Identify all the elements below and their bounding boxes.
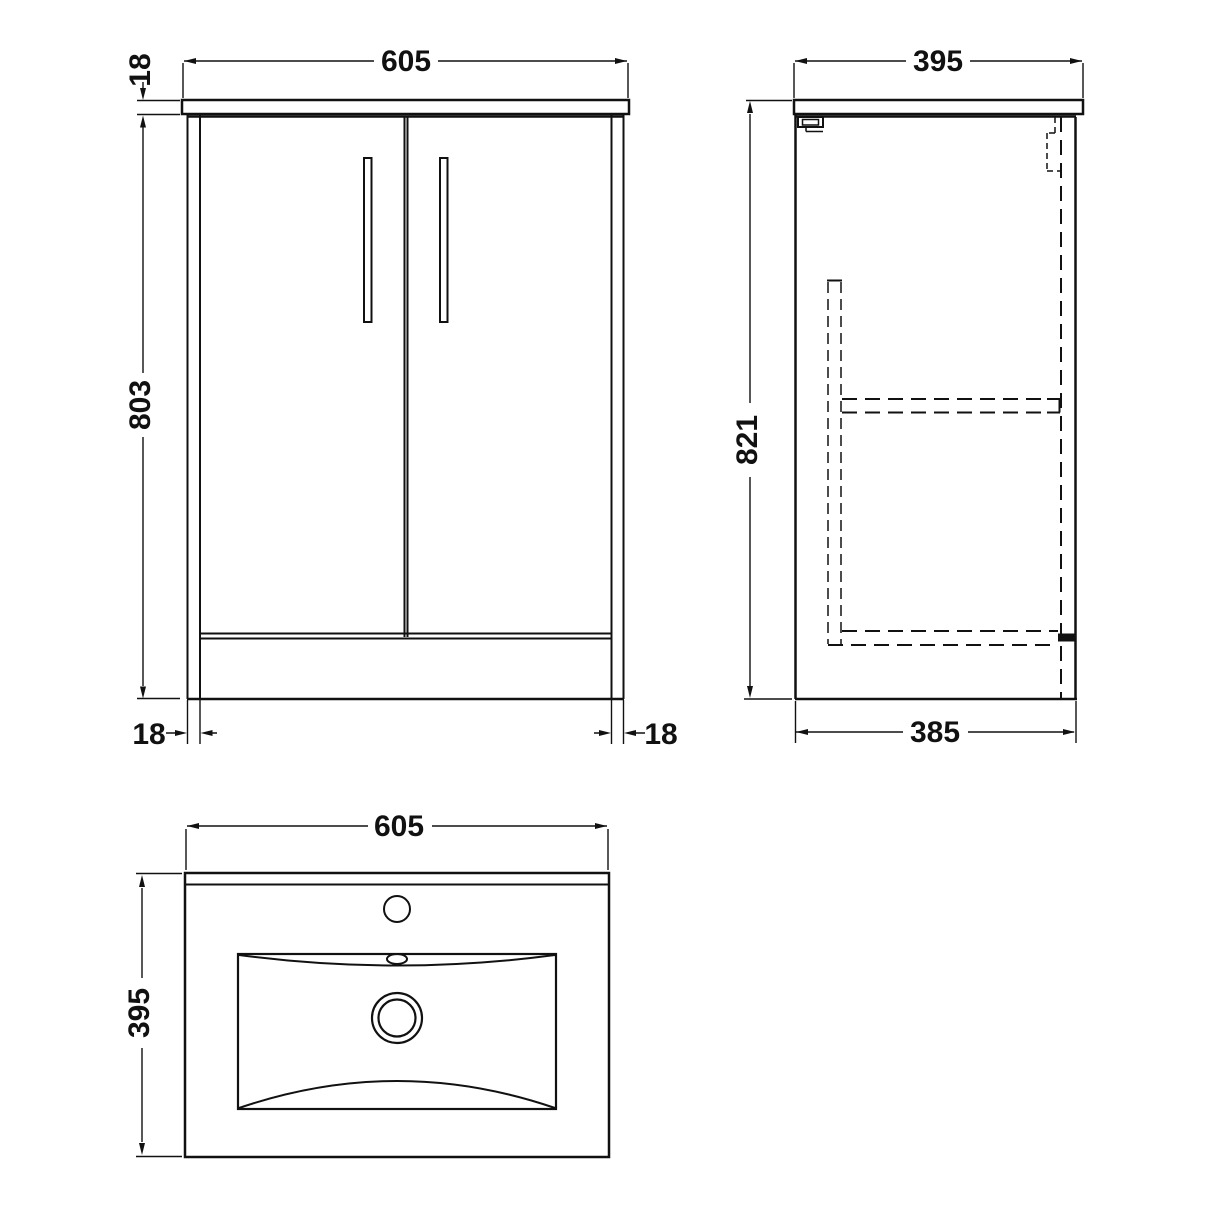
side-door-bottom-edge [1058,634,1076,642]
front-right-leg-dim-label: 18 [644,718,677,751]
side-base-depth-dim-label: 385 [910,716,960,749]
vanity-technical-drawing: 605 18 803 18 [0,0,1214,1214]
plan-depth-dim-label: 395 [123,988,156,1038]
side-height-dim-label: 821 [731,415,764,465]
side-depth-dim-label: 395 [913,45,963,78]
plan-width-dim-label: 605 [374,810,424,843]
front-height-dim-label: 803 [124,380,157,430]
drawing-background [0,0,1214,1214]
front-counter-thickness-dim-label: 18 [124,53,157,86]
front-width-dim-label: 605 [381,45,431,78]
front-left-leg-dim-label: 18 [132,718,165,751]
